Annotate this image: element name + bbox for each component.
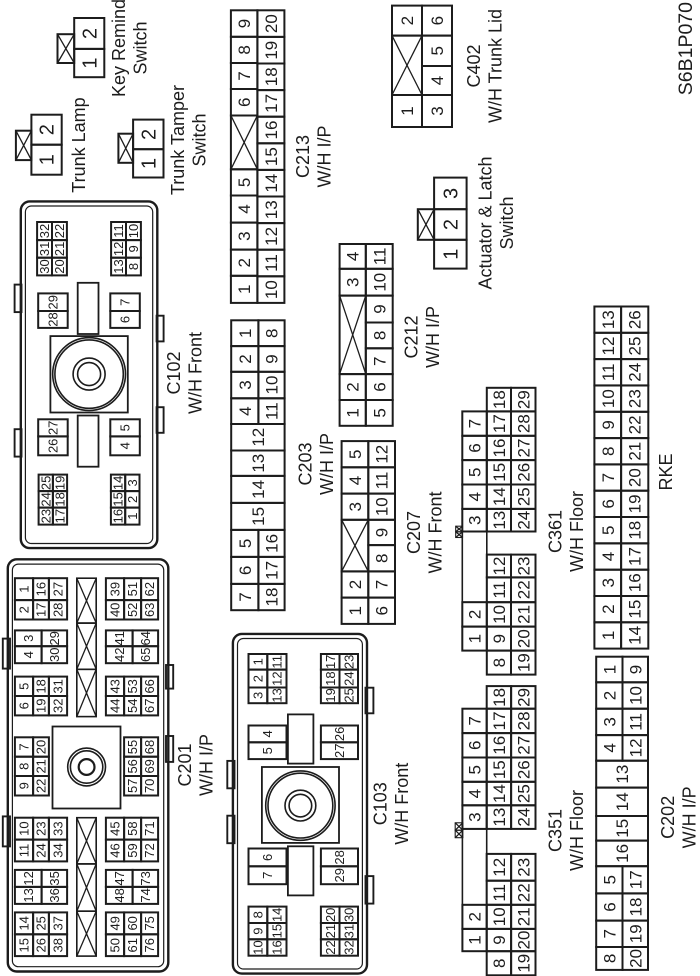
svg-text:32: 32 [341,940,356,954]
svg-text:1: 1 [236,328,255,337]
svg-text:11: 11 [626,713,645,731]
svg-text:17: 17 [263,561,282,580]
svg-text:9: 9 [235,19,254,28]
svg-text:2: 2 [599,604,618,613]
svg-text:3: 3 [600,717,619,726]
svg-text:4: 4 [346,476,365,485]
svg-text:17: 17 [262,94,281,113]
svg-text:20: 20 [626,949,645,968]
svg-text:W/H Floor: W/H Floor [567,491,587,572]
svg-text:20: 20 [626,468,645,487]
svg-text:19: 19 [514,954,533,973]
svg-text:5: 5 [17,683,32,690]
svg-text:11: 11 [370,248,389,266]
svg-text:2: 2 [235,258,254,267]
svg-text:Trunk Tamper: Trunk Tamper [168,85,188,195]
svg-text:14: 14 [111,476,126,490]
svg-text:5: 5 [346,449,365,458]
svg-text:6: 6 [466,443,485,452]
svg-text:17: 17 [53,509,68,523]
svg-text:7: 7 [466,716,485,725]
svg-text:2: 2 [17,606,32,613]
svg-text:7: 7 [260,872,275,879]
svg-text:3: 3 [125,479,140,486]
svg-text:5: 5 [370,408,389,417]
svg-text:14: 14 [613,792,632,811]
svg-text:17: 17 [34,603,49,617]
svg-text:11: 11 [490,884,509,902]
svg-text:2: 2 [236,354,255,363]
svg-text:15: 15 [626,600,645,619]
svg-text:16: 16 [490,736,509,755]
svg-text:28: 28 [514,711,533,730]
svg-text:18: 18 [53,492,68,506]
svg-text:20: 20 [34,740,49,754]
svg-text:4: 4 [428,76,447,85]
svg-text:9: 9 [599,420,618,429]
svg-text:2: 2 [600,691,619,700]
svg-text:1: 1 [599,631,618,640]
svg-text:61: 61 [125,938,140,952]
svg-text:13: 13 [21,888,36,902]
svg-text:6: 6 [599,499,618,508]
svg-text:67: 67 [142,698,157,712]
svg-text:21: 21 [626,442,645,461]
svg-text:9: 9 [490,634,509,643]
svg-text:12: 12 [249,428,268,447]
svg-text:2: 2 [79,28,101,39]
svg-text:23: 23 [514,557,533,576]
svg-text:2: 2 [344,382,363,391]
svg-text:24: 24 [514,808,533,827]
svg-text:9: 9 [490,935,509,944]
svg-text:C402: C402 [464,44,484,87]
svg-text:13: 13 [490,511,509,530]
svg-text:56: 56 [125,759,140,773]
svg-text:11: 11 [111,224,126,238]
svg-text:3: 3 [466,515,485,524]
svg-text:W/H I/P: W/H I/P [680,786,700,848]
svg-text:16: 16 [613,844,632,863]
svg-text:1: 1 [441,249,463,260]
svg-text:12: 12 [373,445,392,464]
svg-text:10: 10 [262,280,281,299]
svg-text:8: 8 [490,958,509,967]
svg-text:7: 7 [599,473,618,482]
svg-text:15: 15 [490,463,509,482]
svg-text:15: 15 [249,507,268,526]
svg-text:4: 4 [260,730,275,737]
svg-text:25: 25 [34,916,49,930]
svg-text:22: 22 [514,883,533,902]
svg-text:16: 16 [626,573,645,592]
svg-text:3: 3 [346,502,365,511]
svg-text:5: 5 [599,525,618,534]
svg-text:7: 7 [17,743,32,750]
svg-text:9: 9 [626,665,645,674]
svg-text:27: 27 [514,439,533,458]
svg-text:41: 41 [112,631,127,645]
svg-text:11: 11 [490,581,509,599]
svg-text:29: 29 [332,868,347,882]
svg-text:8: 8 [263,328,282,337]
svg-text:26: 26 [46,439,61,453]
svg-text:31: 31 [51,679,66,693]
svg-text:15: 15 [17,938,32,952]
svg-text:C201: C201 [175,743,195,786]
svg-text:1: 1 [466,935,485,944]
svg-text:9: 9 [373,528,392,537]
svg-text:24: 24 [626,363,645,382]
svg-text:63: 63 [142,603,157,617]
svg-text:25: 25 [341,688,356,702]
svg-text:4: 4 [466,789,485,798]
svg-text:14: 14 [262,174,281,193]
svg-text:4: 4 [466,492,485,501]
svg-text:16: 16 [262,121,281,140]
svg-text:C351: C351 [546,809,566,852]
svg-text:29: 29 [514,390,533,409]
svg-text:11: 11 [599,363,618,381]
svg-text:2: 2 [466,610,485,619]
svg-text:17: 17 [626,870,645,889]
svg-text:C102: C102 [164,351,184,394]
svg-text:5: 5 [428,46,447,55]
svg-text:19: 19 [262,41,281,60]
svg-text:5: 5 [260,747,275,754]
svg-text:25: 25 [514,487,533,506]
svg-text:28: 28 [51,603,66,617]
svg-text:66: 66 [142,679,157,693]
svg-text:3: 3 [235,231,254,240]
svg-text:7: 7 [466,419,485,428]
svg-text:72: 72 [142,843,157,857]
svg-text:7: 7 [373,580,392,589]
svg-text:16: 16 [270,940,285,954]
svg-text:23: 23 [38,509,53,523]
svg-text:9: 9 [17,782,32,789]
svg-text:18: 18 [262,67,281,86]
svg-text:20: 20 [514,931,533,950]
svg-text:33: 33 [51,821,66,835]
svg-text:62: 62 [142,582,157,596]
svg-text:70: 70 [142,779,157,793]
svg-text:23: 23 [514,858,533,877]
svg-text:64: 64 [138,631,153,645]
svg-text:C213: C213 [293,135,313,178]
svg-text:10: 10 [251,940,266,954]
svg-text:4: 4 [599,552,618,561]
svg-text:C207: C207 [404,511,424,554]
svg-text:26: 26 [514,760,533,779]
svg-text:26: 26 [34,938,49,952]
svg-text:11: 11 [17,844,32,858]
svg-text:2: 2 [346,580,365,589]
svg-text:3: 3 [251,692,266,699]
svg-text:4: 4 [235,204,254,213]
svg-text:8: 8 [235,45,254,54]
svg-text:3: 3 [344,277,363,286]
svg-text:12: 12 [599,337,618,356]
svg-text:23: 23 [34,821,49,835]
svg-text:18: 18 [263,588,282,607]
svg-text:19: 19 [626,924,645,943]
svg-text:2: 2 [398,16,417,25]
svg-text:C203: C203 [296,442,316,485]
svg-text:6: 6 [17,702,32,709]
svg-text:23: 23 [341,655,356,669]
svg-text:4: 4 [344,252,363,261]
svg-text:52: 52 [125,603,140,617]
svg-text:13: 13 [262,200,281,219]
svg-text:27: 27 [514,736,533,755]
svg-text:W/H I/P: W/H I/P [423,306,443,368]
svg-text:W/H Front: W/H Front [392,763,412,845]
svg-text:6: 6 [373,606,392,615]
svg-text:13: 13 [613,765,632,784]
svg-text:25: 25 [626,337,645,356]
svg-text:5: 5 [466,765,485,774]
svg-text:18: 18 [490,688,509,707]
svg-text:13: 13 [599,310,618,329]
svg-text:24: 24 [38,492,53,506]
svg-text:73: 73 [138,871,153,885]
svg-text:13: 13 [249,454,268,473]
svg-text:14: 14 [490,487,509,506]
svg-text:68: 68 [142,740,157,754]
svg-text:3: 3 [466,812,485,821]
svg-text:22: 22 [514,580,533,599]
svg-text:30: 30 [47,647,62,661]
svg-text:14: 14 [17,916,32,930]
svg-text:8: 8 [251,911,266,918]
svg-text:29: 29 [47,631,62,645]
svg-text:15: 15 [262,147,281,166]
svg-text:54: 54 [125,698,140,712]
svg-text:6: 6 [118,316,133,323]
svg-text:12: 12 [21,871,36,885]
svg-text:Switch: Switch [497,196,517,249]
svg-text:51: 51 [125,582,140,596]
svg-text:10: 10 [373,497,392,516]
svg-text:10: 10 [17,821,32,835]
svg-text:W/H Floor: W/H Floor [567,790,587,871]
svg-text:6: 6 [370,382,389,391]
svg-text:16: 16 [490,439,509,458]
svg-text:W/H Front: W/H Front [425,491,445,573]
svg-text:37: 37 [51,916,66,930]
svg-text:55: 55 [125,740,140,754]
svg-text:10: 10 [370,273,389,292]
svg-text:53: 53 [125,679,140,693]
svg-text:18: 18 [323,671,338,685]
svg-text:11: 11 [270,655,285,669]
svg-text:9: 9 [126,245,141,252]
svg-text:76: 76 [142,938,157,952]
svg-text:18: 18 [626,898,645,917]
svg-text:19: 19 [323,688,338,702]
svg-text:5: 5 [600,875,619,884]
svg-text:8: 8 [600,954,619,963]
svg-text:5: 5 [466,468,485,477]
svg-text:Switch: Switch [190,113,210,166]
svg-text:31: 31 [37,242,52,256]
svg-text:7: 7 [118,299,133,306]
svg-text:11: 11 [373,472,392,490]
svg-text:23: 23 [626,389,645,408]
svg-text:19: 19 [34,698,49,712]
svg-text:14: 14 [270,908,285,922]
svg-text:21: 21 [52,242,67,256]
svg-text:RKE: RKE [656,453,676,490]
svg-text:22: 22 [52,224,67,238]
svg-text:1: 1 [251,658,266,665]
svg-text:17: 17 [490,414,509,433]
svg-text:18: 18 [626,521,645,540]
svg-text:12: 12 [262,227,281,246]
svg-text:10: 10 [263,376,282,395]
svg-text:17: 17 [490,711,509,730]
svg-text:39: 39 [108,582,123,596]
svg-text:14: 14 [626,626,645,645]
svg-text:27: 27 [46,421,61,435]
svg-text:3: 3 [441,188,463,199]
svg-text:7: 7 [600,929,619,938]
svg-text:2: 2 [37,124,59,135]
svg-text:10: 10 [626,686,645,705]
svg-text:32: 32 [51,698,66,712]
svg-text:10: 10 [599,389,618,408]
svg-text:10: 10 [490,907,509,926]
svg-text:18: 18 [490,390,509,409]
svg-text:10: 10 [126,224,141,238]
svg-text:8: 8 [373,553,392,562]
svg-text:26: 26 [626,310,645,329]
svg-text:2: 2 [125,496,140,503]
svg-text:3: 3 [428,106,447,115]
svg-text:6: 6 [236,566,255,575]
svg-text:30: 30 [341,908,356,922]
svg-text:9: 9 [263,354,282,363]
svg-text:11: 11 [263,402,282,420]
svg-text:22: 22 [626,415,645,434]
svg-text:24: 24 [514,511,533,530]
svg-text:8: 8 [370,331,389,340]
svg-text:1: 1 [125,512,140,519]
svg-text:34: 34 [51,843,66,857]
svg-text:W/H I/P: W/H I/P [317,433,337,495]
svg-text:C212: C212 [401,315,421,358]
svg-text:24: 24 [34,843,49,857]
svg-text:17: 17 [626,547,645,566]
svg-text:9: 9 [251,927,266,934]
svg-text:8: 8 [599,446,618,455]
svg-text:22: 22 [34,779,49,793]
svg-text:11: 11 [262,254,281,272]
svg-text:1: 1 [235,285,254,294]
svg-text:4: 4 [21,651,36,658]
svg-text:13: 13 [270,688,285,702]
svg-text:12: 12 [111,242,126,256]
svg-text:27: 27 [332,743,347,757]
svg-text:60: 60 [125,916,140,930]
svg-text:32: 32 [37,224,52,238]
svg-text:46: 46 [108,843,123,857]
svg-text:21: 21 [323,924,338,938]
svg-text:15: 15 [111,492,126,506]
svg-text:3: 3 [236,380,255,389]
svg-text:28: 28 [46,312,61,326]
svg-text:21: 21 [514,605,533,624]
svg-text:1: 1 [398,106,417,115]
svg-text:5: 5 [118,424,133,431]
svg-text:14: 14 [249,480,268,499]
svg-text:3: 3 [21,635,36,642]
svg-text:45: 45 [108,821,123,835]
svg-text:2: 2 [138,129,160,140]
svg-text:75: 75 [142,916,157,930]
svg-text:3: 3 [599,578,618,587]
svg-text:1: 1 [138,158,160,169]
svg-text:1: 1 [17,585,32,592]
svg-text:7: 7 [370,356,389,365]
svg-text:8: 8 [126,263,141,270]
svg-text:4: 4 [600,743,619,752]
svg-text:26: 26 [514,463,533,482]
svg-text:17: 17 [323,655,338,669]
svg-text:1: 1 [466,634,485,643]
svg-text:6: 6 [235,97,254,106]
svg-text:4: 4 [118,442,133,449]
svg-text:W/H I/P: W/H I/P [197,734,217,796]
svg-text:12: 12 [490,858,509,877]
svg-text:59: 59 [125,843,140,857]
svg-text:38: 38 [51,938,66,952]
svg-text:44: 44 [108,698,123,712]
svg-text:29: 29 [514,688,533,707]
svg-text:35: 35 [47,871,62,885]
svg-text:2: 2 [251,675,266,682]
svg-text:Switch: Switch [131,21,151,74]
svg-text:1: 1 [79,57,101,68]
svg-text:5: 5 [236,539,255,548]
svg-text:27: 27 [51,582,66,596]
svg-text:26: 26 [332,727,347,741]
svg-text:W/H Front: W/H Front [186,332,206,414]
svg-text:58: 58 [125,821,140,835]
svg-text:9: 9 [370,304,389,313]
svg-text:19: 19 [53,476,68,490]
svg-text:19: 19 [514,653,533,672]
svg-text:13: 13 [111,259,126,273]
svg-text:69: 69 [142,759,157,773]
svg-text:6: 6 [260,854,275,861]
svg-text:28: 28 [332,850,347,864]
svg-text:16: 16 [34,582,49,596]
svg-text:20: 20 [52,259,67,273]
svg-text:42: 42 [112,647,127,661]
svg-text:36: 36 [47,888,62,902]
svg-text:4: 4 [236,406,255,415]
svg-text:49: 49 [108,916,123,930]
svg-text:15: 15 [270,924,285,938]
svg-text:12: 12 [490,557,509,576]
svg-text:6: 6 [466,741,485,750]
svg-text:12: 12 [626,738,645,757]
svg-text:22: 22 [323,940,338,954]
svg-text:S6B1P070: S6B1P070 [675,2,697,95]
svg-text:21: 21 [514,907,533,926]
